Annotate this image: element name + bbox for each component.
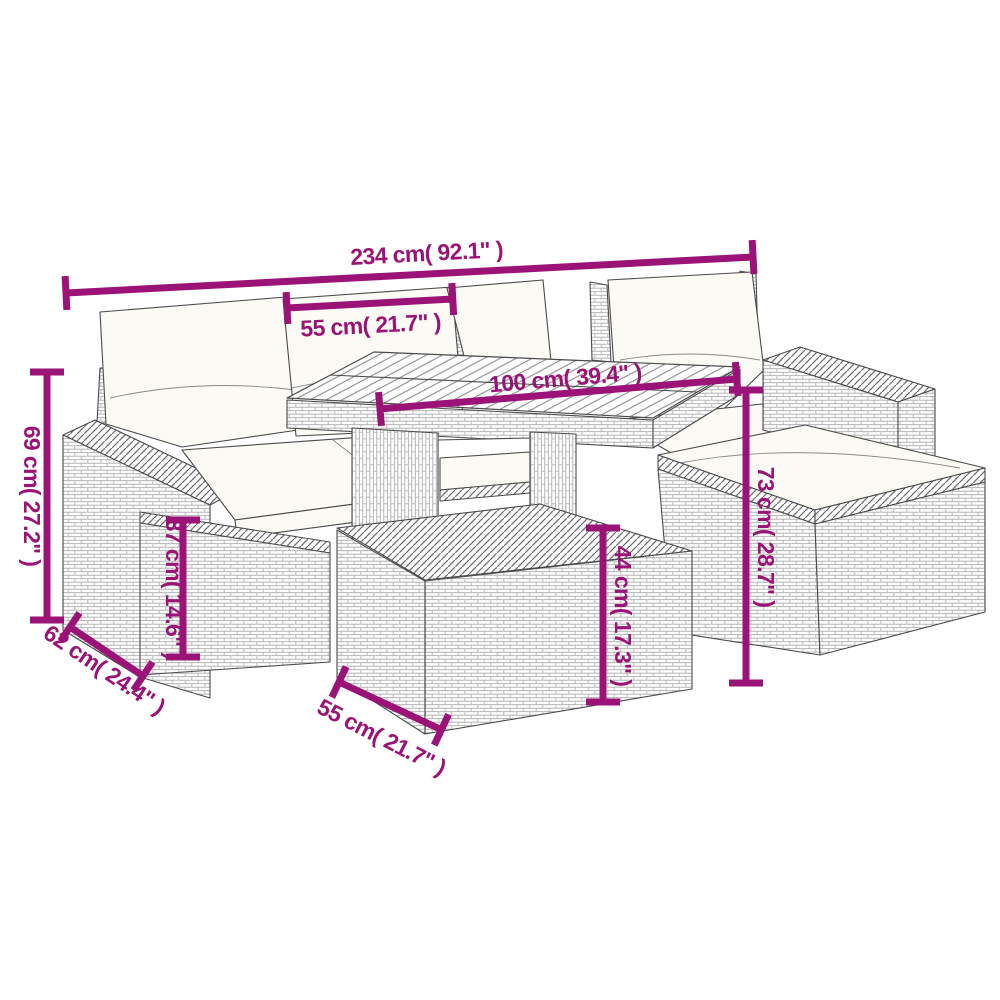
dim-overall-height: 69 cm( 27.2" ) [19,372,64,620]
product-dimension-diagram: 234 cm( 92.1" ) 55 cm( 21.7" ) 100 cm( 3… [0,0,1000,1000]
dim-overall-height-label: 69 cm( 27.2" ) [19,426,45,567]
dim-overall-width-label: 234 cm( 92.1" ) [350,236,504,270]
table-base-box [337,504,692,734]
base-box-side [425,551,692,734]
ottoman [658,425,985,655]
furniture-illustration [63,271,985,734]
dim-back-height-label: 73 cm( 28.7" ) [753,467,779,608]
dim-table-height-label: 44 cm( 17.3" ) [610,546,636,687]
back-cushion-1 [100,297,298,447]
dim-seat-height-label: 37 cm( 14.6" ) [161,519,187,660]
diagram-svg: 234 cm( 92.1" ) 55 cm( 21.7" ) 100 cm( 3… [0,0,1000,1000]
